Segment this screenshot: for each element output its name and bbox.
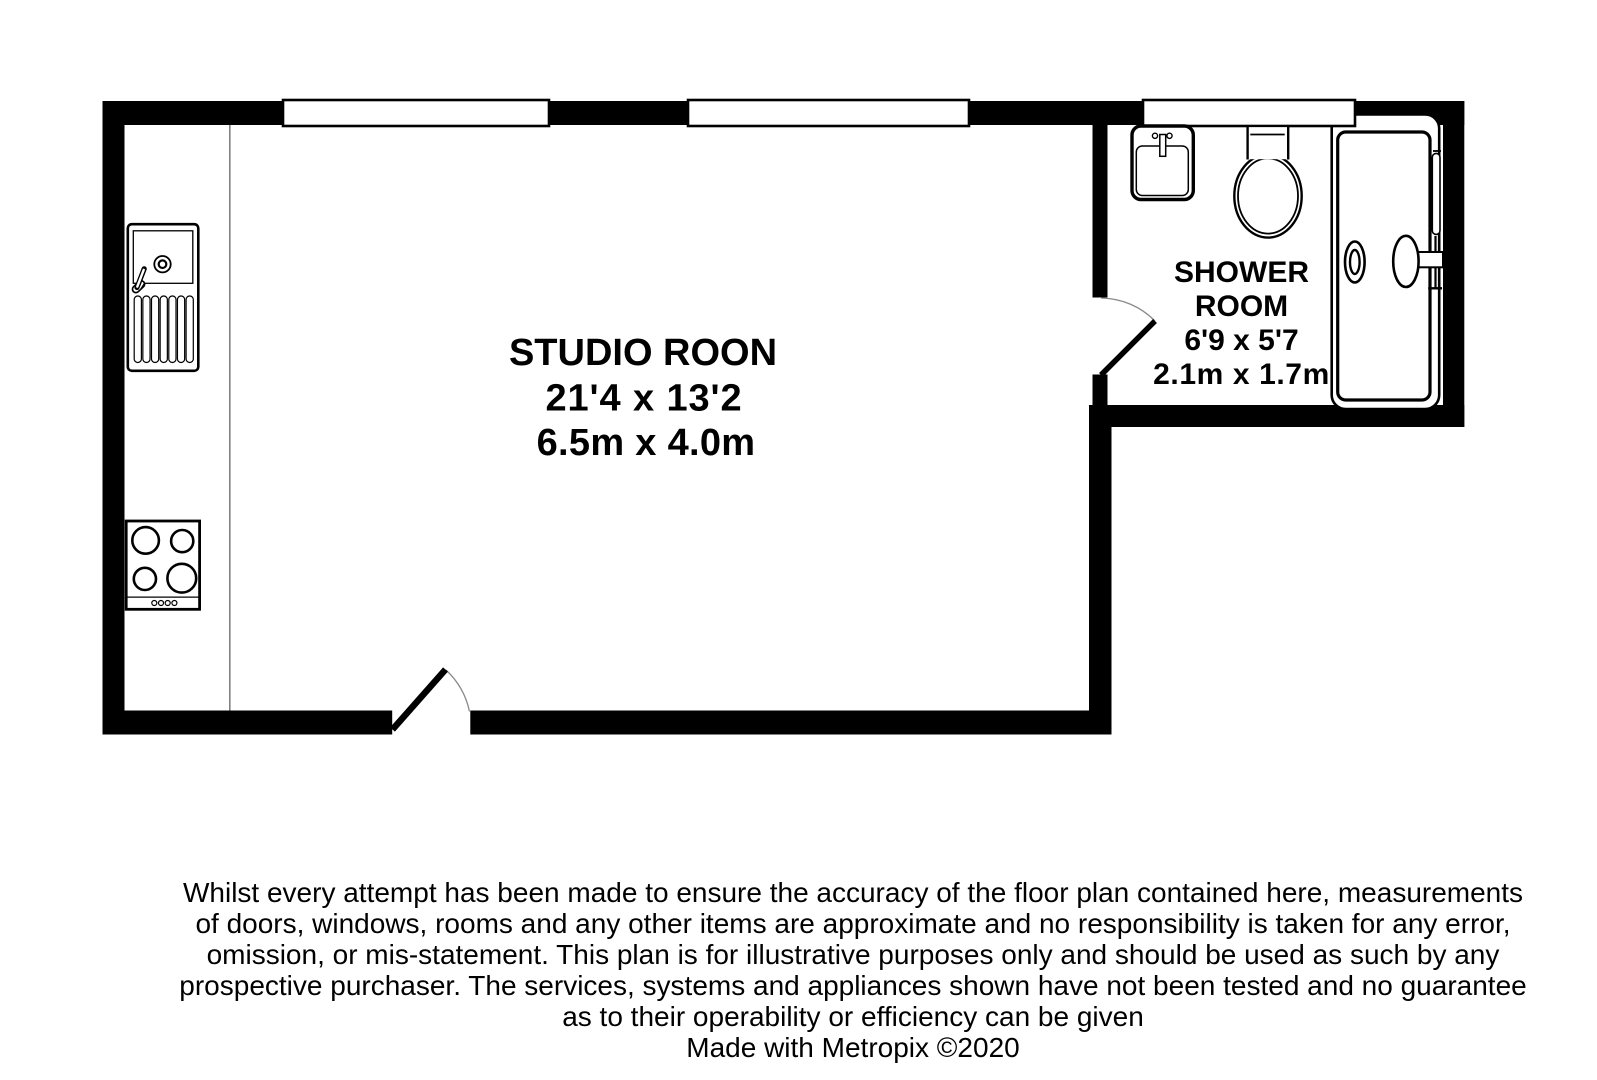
svg-text:6.5m x 4.0m: 6.5m x 4.0m <box>537 422 756 464</box>
svg-text:Made with Metropix ©2020: Made with Metropix ©2020 <box>686 1032 1019 1063</box>
svg-text:STUDIO ROON: STUDIO ROON <box>509 332 777 374</box>
svg-text:6'9 x 5'7: 6'9 x 5'7 <box>1184 324 1298 357</box>
svg-text:as to their operability or eff: as to their operability or efficiency ca… <box>562 1001 1144 1032</box>
svg-text:Whilst every attempt has been: Whilst every attempt has been made to en… <box>183 877 1523 908</box>
svg-text:21'4 x 13'2: 21'4 x 13'2 <box>545 378 742 420</box>
svg-text:2.1m x 1.7m: 2.1m x 1.7m <box>1153 358 1330 391</box>
svg-text:ROOM: ROOM <box>1195 290 1288 323</box>
svg-text:prospective purchaser. The ser: prospective purchaser. The services, sys… <box>179 970 1526 1001</box>
svg-text:SHOWER: SHOWER <box>1174 256 1309 289</box>
svg-text:omission, or mis-statement. Th: omission, or mis-statement. This plan is… <box>207 939 1500 970</box>
svg-text:of doors, windows, rooms and a: of doors, windows, rooms and any other i… <box>195 908 1510 939</box>
